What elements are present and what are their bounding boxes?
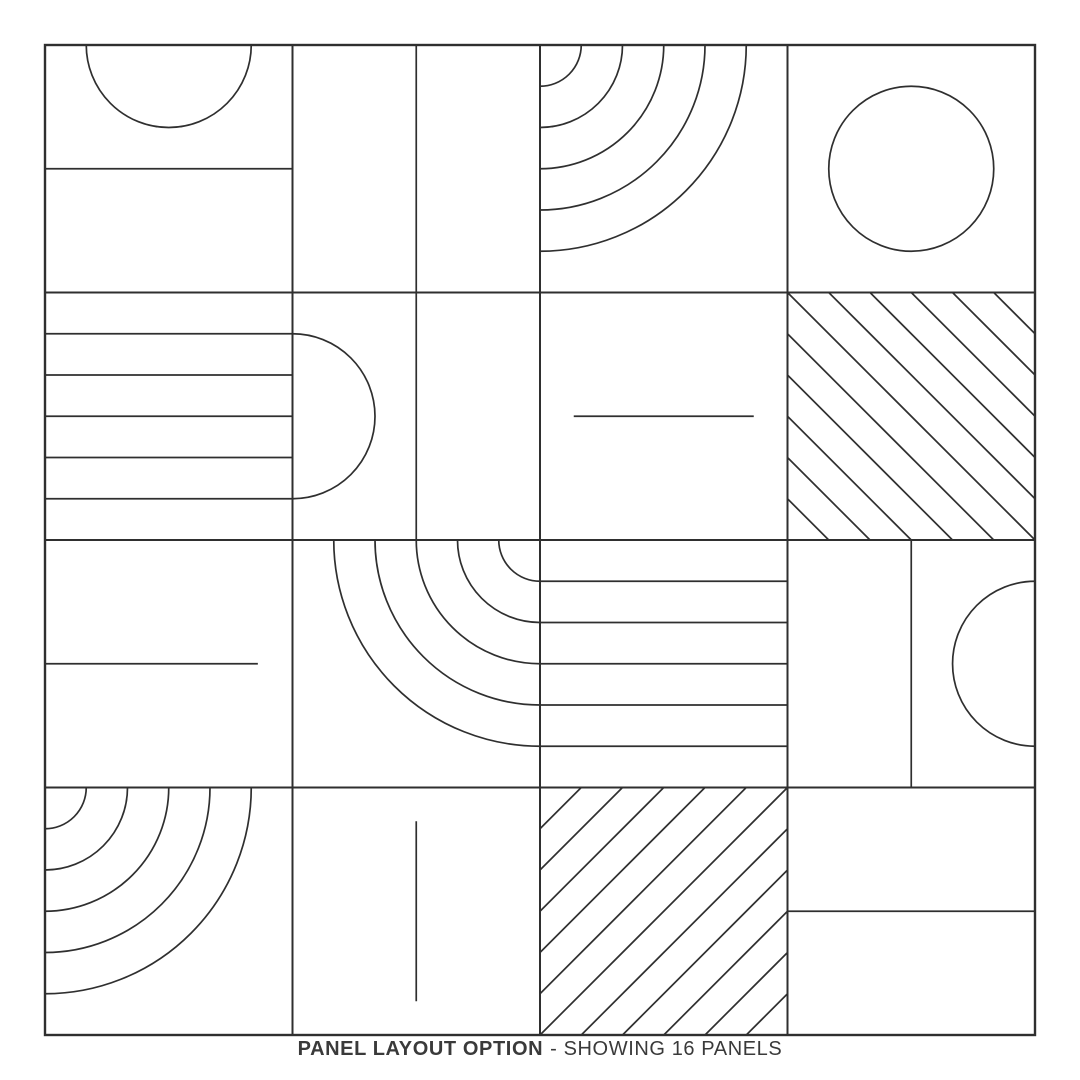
caption-subtitle: - SHOWING 16 PANELS: [550, 1038, 782, 1061]
panel-r3c3: [540, 581, 788, 746]
panel-r2c2: [293, 293, 417, 541]
panel-r1c3: [540, 45, 746, 251]
panel-r3c2: [334, 540, 540, 746]
panel-r2c4: [788, 293, 1036, 541]
panel-layout-sheet: PANEL LAYOUT OPTION - SHOWING 16 PANELS: [0, 0, 1080, 1080]
panel-r4c3: [540, 788, 788, 1036]
caption: PANEL LAYOUT OPTION - SHOWING 16 PANELS: [0, 1038, 1080, 1061]
panel-grid-drawing: [0, 0, 1080, 1080]
panel-r1c1: [45, 45, 293, 169]
panel-r4c1: [45, 788, 251, 994]
grid-lines: [45, 45, 1035, 1035]
panel-r3c4: [911, 540, 1035, 788]
panel-r1c4: [829, 86, 994, 251]
panel-r2c1: [45, 334, 293, 499]
caption-title: PANEL LAYOUT OPTION: [298, 1038, 544, 1061]
